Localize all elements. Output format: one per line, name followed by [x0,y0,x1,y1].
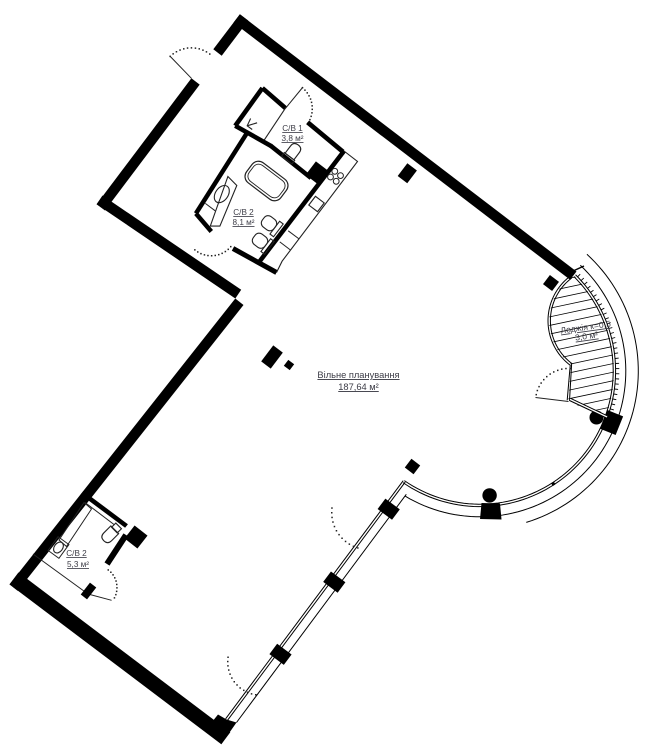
svg-text:3,8 м²: 3,8 м² [281,134,303,143]
svg-text:С/В 1: С/В 1 [282,124,303,133]
svg-text:С/В 2: С/В 2 [66,549,87,558]
svg-text:С/В 2: С/В 2 [233,208,254,217]
svg-text:Вільне планування: Вільне планування [317,370,399,380]
svg-text:8,1 м²: 8,1 м² [232,218,254,227]
svg-text:187,64 м²: 187,64 м² [338,382,379,392]
svg-text:5,3 м²: 5,3 м² [67,560,89,569]
